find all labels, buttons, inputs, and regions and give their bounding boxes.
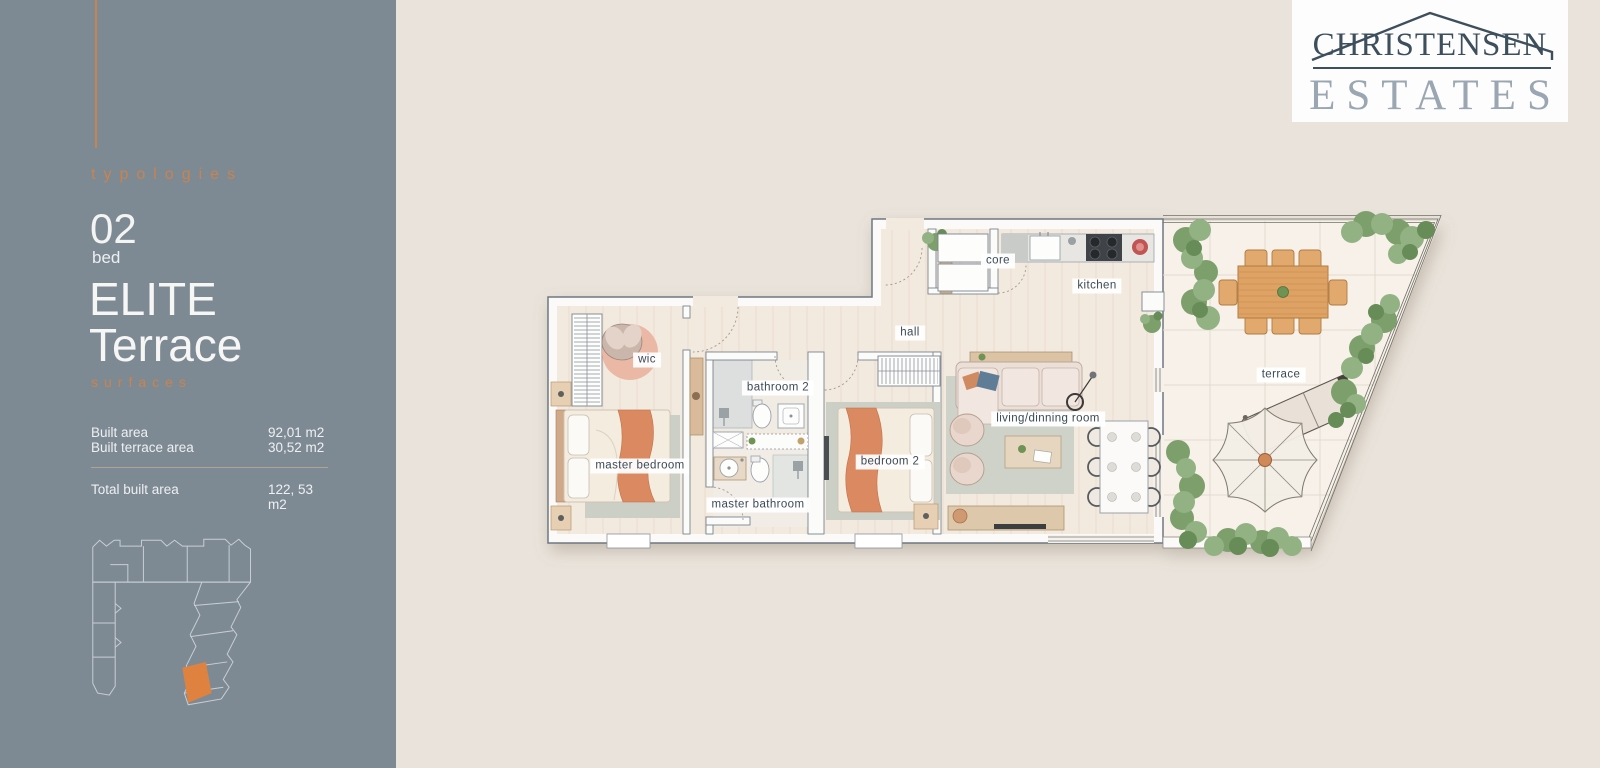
room-label-master-bathroom: master bathroom xyxy=(707,498,810,513)
typologies-kicker: typologies xyxy=(91,166,243,184)
room-label-master-bedroom: master bedroom xyxy=(590,459,689,474)
total-label: Total built area xyxy=(91,482,268,512)
type-name-line2: Terrace xyxy=(89,322,242,368)
accent-line xyxy=(95,0,97,148)
surface-label: Built terrace area xyxy=(91,440,268,455)
room-label-wic: wic xyxy=(633,353,661,368)
tv-console xyxy=(948,506,1064,530)
table-plant xyxy=(1278,287,1289,298)
building-locator xyxy=(85,523,270,723)
surface-table: Built area 92,01 m2 Built terrace area 3… xyxy=(91,425,331,455)
surface-row: Built terrace area 30,52 m2 xyxy=(91,440,331,455)
surface-divider xyxy=(91,467,328,468)
kitchen-counter xyxy=(1002,232,1154,262)
room-label-core: core xyxy=(981,254,1015,269)
room-label-living-dining: living/dinning room xyxy=(991,412,1105,427)
type-name-line1: ELITE xyxy=(89,276,217,322)
unit-highlight xyxy=(182,662,211,703)
surface-value: 30,52 m2 xyxy=(268,440,331,455)
parasol xyxy=(1213,408,1317,512)
surfaces-kicker: surfaces xyxy=(91,374,192,390)
brand-name: CHRISTENSEN xyxy=(1292,27,1568,64)
surface-label: Built area xyxy=(91,425,268,440)
sidebar: typologies 02 bed ELITE Terrace surfaces… xyxy=(0,0,396,768)
bedrooms-number: 02 xyxy=(90,208,137,250)
bedrooms-unit: bed xyxy=(92,248,120,268)
indoor-dining-set xyxy=(1088,421,1160,513)
coffee-table xyxy=(1005,436,1061,468)
page: core kitchen hall wic bathroom 2 master … xyxy=(0,0,1600,768)
brand-subname: ESTATES xyxy=(1292,71,1568,120)
brand-logo: CHRISTENSEN ESTATES xyxy=(1292,0,1568,122)
total-value: 122, 53 m2 xyxy=(268,482,331,512)
brand-underline xyxy=(1313,67,1551,69)
room-label-hall: hall xyxy=(895,326,925,341)
surface-row: Built area 92,01 m2 xyxy=(91,425,331,440)
room-label-bathroom-2: bathroom 2 xyxy=(742,381,814,396)
surface-value: 92,01 m2 xyxy=(268,425,331,440)
room-label-bedroom-2: bedroom 2 xyxy=(856,455,925,470)
room-label-terrace: terrace xyxy=(1257,368,1306,383)
room-label-kitchen: kitchen xyxy=(1072,279,1121,294)
surface-total-row: Total built area 122, 53 m2 xyxy=(91,482,331,512)
